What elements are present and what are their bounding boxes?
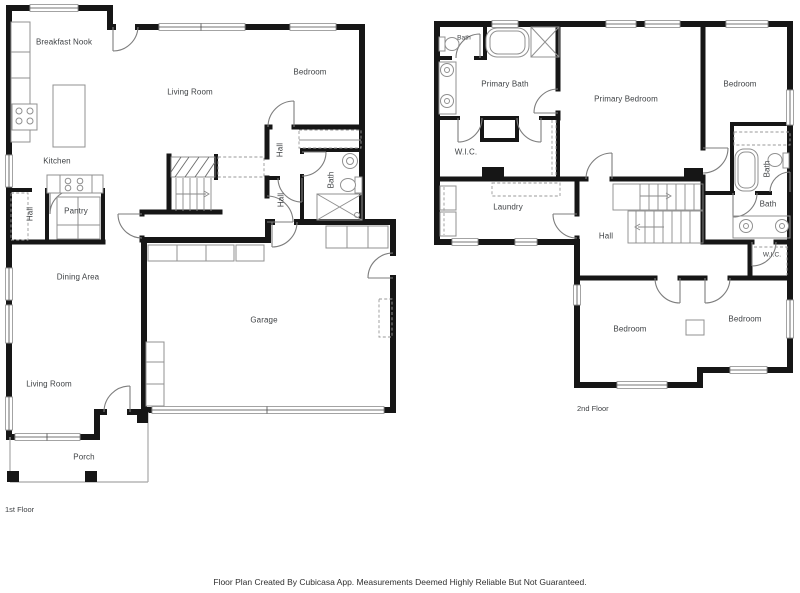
room-label-living-room-lower: Living Room	[26, 380, 72, 389]
room-label-bath-center: Bath	[760, 200, 777, 209]
garage-door	[152, 407, 384, 414]
room-label-hall-entry: Hall	[26, 207, 35, 221]
room-label-porch: Porch	[73, 453, 94, 462]
pantry-shelves	[11, 193, 100, 240]
room-label-bedroom-1f: Bedroom	[293, 68, 326, 77]
room-label-bedroom-bottom-left: Bedroom	[613, 325, 646, 334]
room-label-bedroom-bottom-right: Bedroom	[728, 315, 761, 324]
bedroom-closet	[686, 320, 704, 335]
room-label-pantry: Pantry	[64, 207, 88, 216]
room-label-hall-upper: Hall	[276, 143, 285, 157]
bathtub	[486, 28, 529, 57]
kitchen-island	[53, 85, 85, 147]
room-label-wic: W.I.C.	[455, 148, 477, 157]
room-label-bath-1f: Bath	[327, 172, 336, 189]
second-floor-stairs	[613, 184, 703, 243]
first-floor-caption: 1st Floor	[5, 505, 34, 514]
disclaimer-text: Floor Plan Created By Cubicasa App. Meas…	[0, 577, 800, 587]
first-floor-plan	[6, 5, 394, 483]
second-floor-caption: 2nd Floor	[577, 404, 609, 413]
kitchen-counter	[11, 22, 103, 193]
room-label-living-room-upper: Living Room	[167, 88, 213, 97]
room-label-bedroom-top-right: Bedroom	[723, 80, 756, 89]
room-label-primary-bedroom: Primary Bedroom	[594, 95, 658, 104]
room-label-dining-area: Dining Area	[57, 273, 99, 282]
floorplan-canvas	[0, 0, 800, 593]
room-label-bath-top-2f: Bath	[457, 35, 471, 42]
room-label-hall-lower: Hall	[277, 193, 286, 207]
room-label-laundry: Laundry	[493, 203, 523, 212]
room-label-bath-right: Bath	[763, 161, 772, 178]
second-floor-bath-fixtures	[439, 27, 790, 275]
room-label-wic-small: W.I.C.	[763, 252, 781, 259]
floorplan-page: Breakfast Nook Living Room Bedroom Kitch…	[0, 0, 800, 593]
porch-outline	[7, 410, 148, 482]
room-label-breakfast-nook: Breakfast Nook	[36, 38, 92, 47]
room-label-kitchen: Kitchen	[43, 157, 70, 166]
first-floor-exterior-walls	[9, 8, 393, 437]
room-label-hall-2f: Hall	[599, 232, 613, 241]
room-label-primary-bath: Primary Bath	[481, 80, 528, 89]
room-label-garage: Garage	[250, 316, 277, 325]
